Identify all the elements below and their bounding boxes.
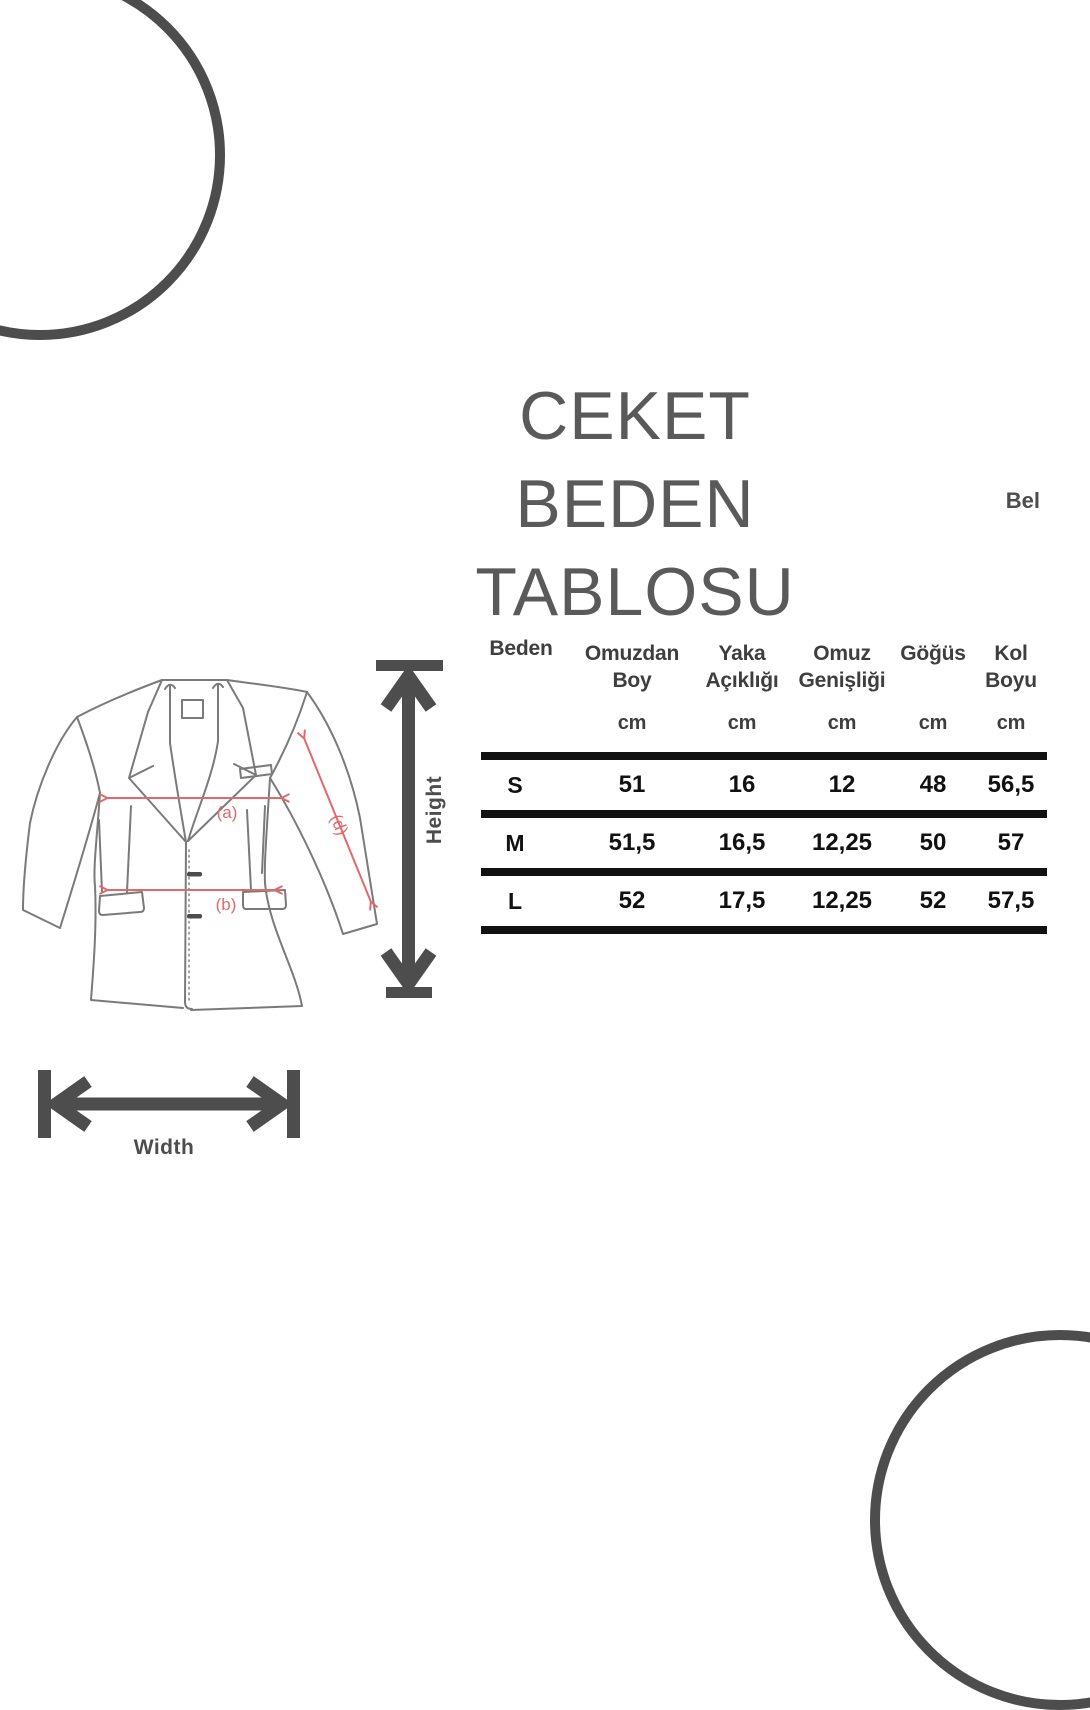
- col-header-beden: Beden: [481, 632, 573, 752]
- value-cell: 57: [975, 818, 1047, 868]
- decorative-circle-top-left: [0, 0, 225, 340]
- width-label: Width: [104, 1136, 224, 1160]
- page-title: CEKET BEDEN TABLOSU: [395, 372, 875, 636]
- page-title-line2: TABLOSU: [395, 548, 875, 636]
- value-cell: 12: [793, 760, 891, 810]
- value-cell: 52: [891, 876, 975, 926]
- col-header-omuz-genisligi: Omuz Genişliği cm: [793, 632, 891, 752]
- measure-label-b: (b): [216, 895, 237, 914]
- size-cell: S: [481, 760, 573, 810]
- value-cell: 17,5: [691, 876, 793, 926]
- jacket-diagram: (a) (b) (d): [15, 628, 385, 1023]
- table-bottom-line: [481, 926, 1047, 934]
- value-cell: 51: [573, 760, 691, 810]
- value-cell: 12,25: [793, 876, 891, 926]
- decorative-circle-bottom-right: [870, 1330, 1090, 1710]
- table-row-s: S 51 16 12 48 56,5: [481, 752, 1047, 810]
- col-header-gogus: Göğüs cm: [891, 632, 975, 752]
- value-cell: 50: [891, 818, 975, 868]
- jacket-outline: [23, 680, 377, 1010]
- col-unit-omuz-genisligi: cm: [793, 710, 891, 737]
- col-unit-kol-boyu: cm: [975, 710, 1047, 737]
- col-header-yaka-acikligi: Yaka Açıklığı cm: [691, 632, 793, 752]
- value-cell: 16: [691, 760, 793, 810]
- value-cell: 48: [891, 760, 975, 810]
- height-label: Height: [423, 750, 451, 870]
- size-table-header: Beden Omuzdan Boy cm Yaka Açıklığı cm Om…: [481, 632, 1047, 752]
- col-unit-yaka-acikligi: cm: [691, 710, 793, 737]
- value-cell: 56,5: [975, 760, 1047, 810]
- size-cell: L: [481, 876, 573, 926]
- table-row-l: L 52 17,5 12,25 52 57,5: [481, 868, 1047, 926]
- col-header-kol-boyu: Kol Boyu cm: [975, 632, 1047, 752]
- value-cell: 52: [573, 876, 691, 926]
- value-cell: 16,5: [691, 818, 793, 868]
- value-cell: 51,5: [573, 818, 691, 868]
- size-cell: M: [481, 818, 573, 868]
- col-unit-omuzdan-boy: cm: [573, 710, 691, 737]
- measure-label-d: (d): [326, 812, 352, 839]
- table-row-m: M 51,5 16,5 12,25 50 57: [481, 810, 1047, 868]
- page-title-line1: CEKET BEDEN: [395, 372, 875, 548]
- measure-label-a: (a): [217, 803, 238, 822]
- col-header-omuzdan-boy: Omuzdan Boy cm: [573, 632, 691, 752]
- width-arrow: [30, 1062, 310, 1147]
- bel-label: Bel: [960, 488, 1040, 514]
- value-cell: 57,5: [975, 876, 1047, 926]
- col-unit-gogus: cm: [891, 710, 975, 737]
- size-table: Beden Omuzdan Boy cm Yaka Açıklığı cm Om…: [481, 632, 1047, 934]
- value-cell: 12,25: [793, 818, 891, 868]
